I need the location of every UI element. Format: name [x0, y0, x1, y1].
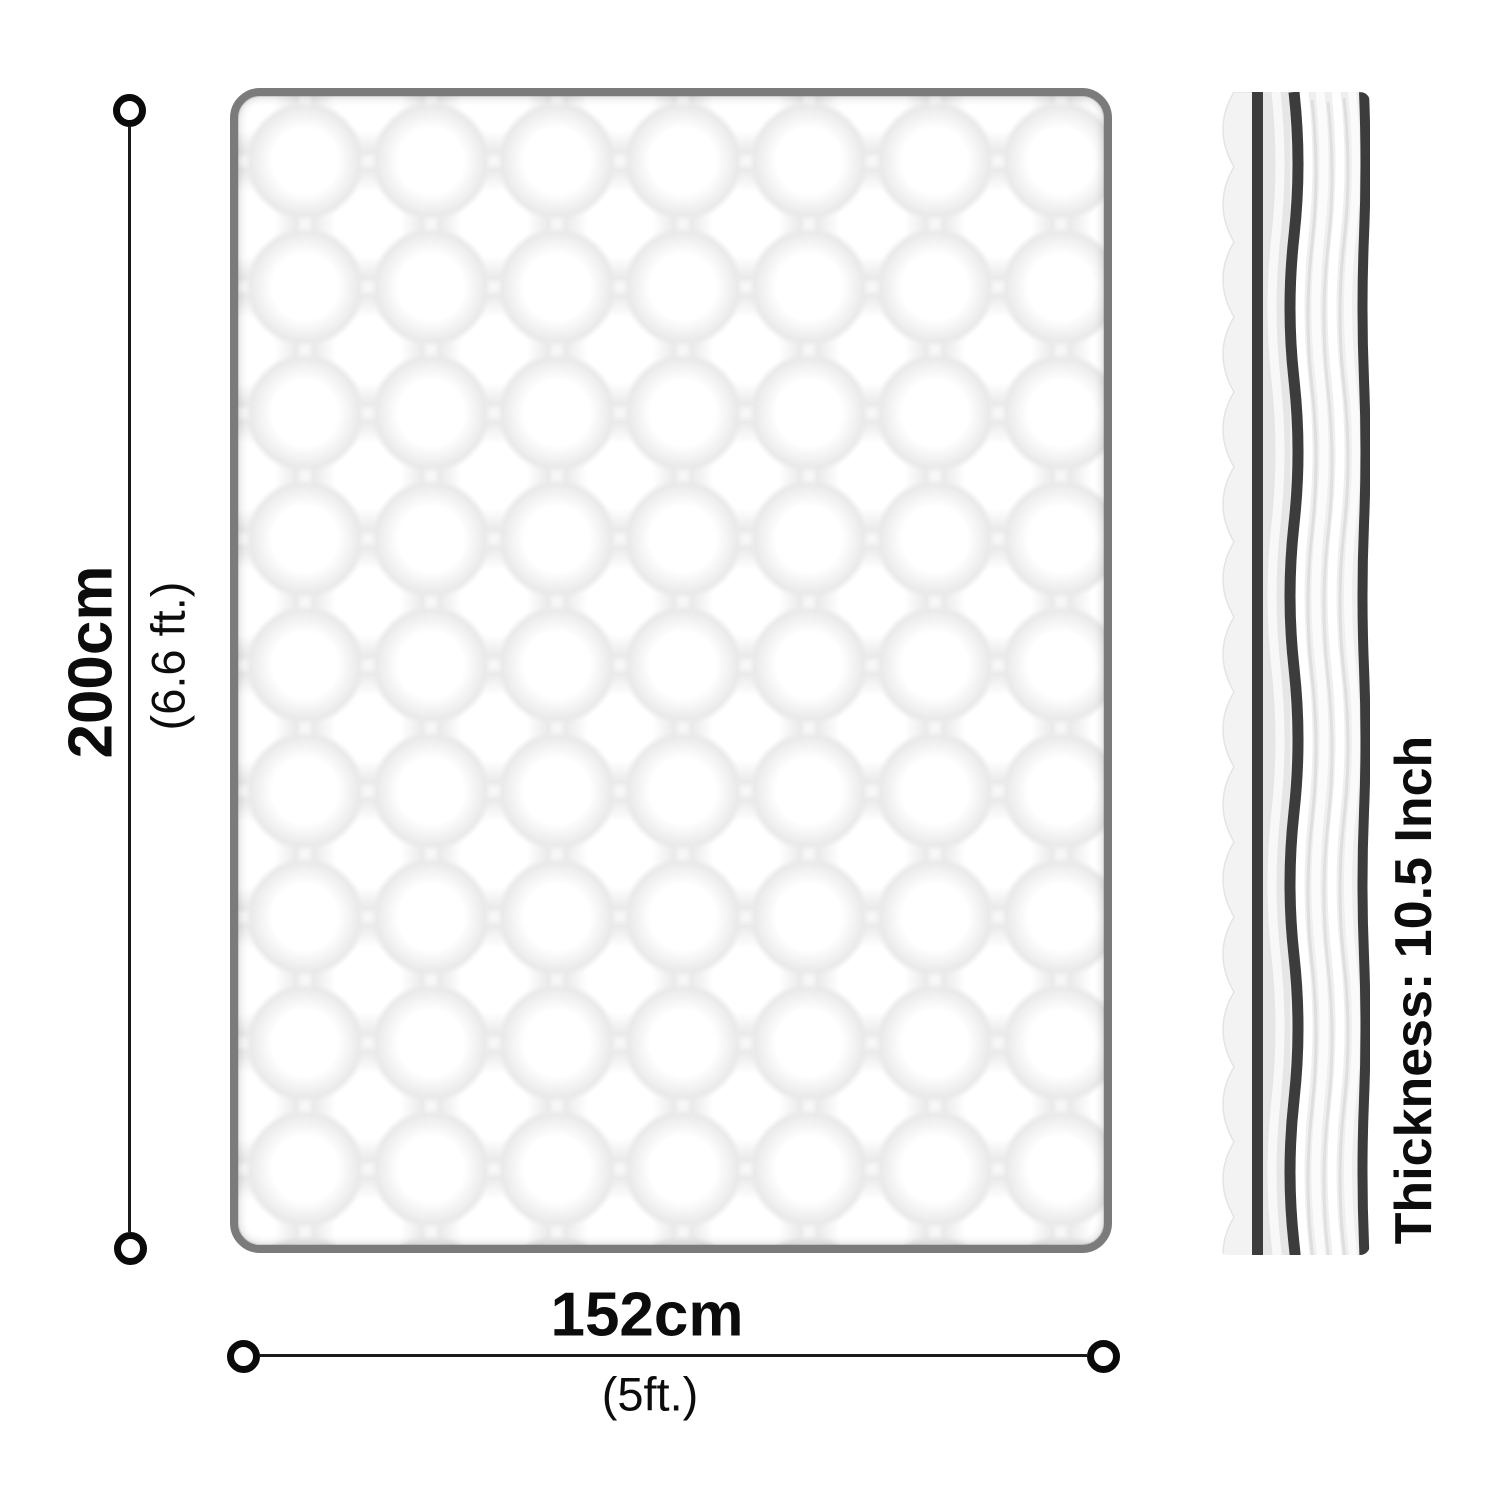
width-dim-endpoint-right-circle	[1087, 1340, 1120, 1373]
width-dimension-line	[259, 1354, 1087, 1357]
height-dimension-line	[128, 126, 131, 1232]
height-alt-label: (6.6 ft.)	[141, 582, 196, 731]
height-dim-endpoint-bottom-circle	[114, 1232, 147, 1265]
width-value-label: 152cm	[550, 1280, 743, 1351]
mattress-top-view	[230, 88, 1112, 1253]
mattress-side-view-graphic	[1218, 92, 1370, 1255]
mattress-side-view	[1218, 92, 1370, 1255]
side-piping-right	[1363, 92, 1366, 1255]
height-value-label: 200cm	[56, 565, 127, 758]
thickness-label: Thickness: 10.5 Inch	[1384, 736, 1444, 1245]
mattress-dimension-diagram: 200cm (6.6 ft.) 152cm (5ft.)	[0, 0, 1500, 1500]
height-dim-endpoint-top-circle	[113, 94, 146, 127]
width-alt-label: (5ft.)	[602, 1367, 699, 1422]
width-dim-endpoint-left-circle	[227, 1340, 260, 1373]
side-piping-middle	[1290, 92, 1298, 1255]
side-piping-left	[1252, 92, 1263, 1255]
